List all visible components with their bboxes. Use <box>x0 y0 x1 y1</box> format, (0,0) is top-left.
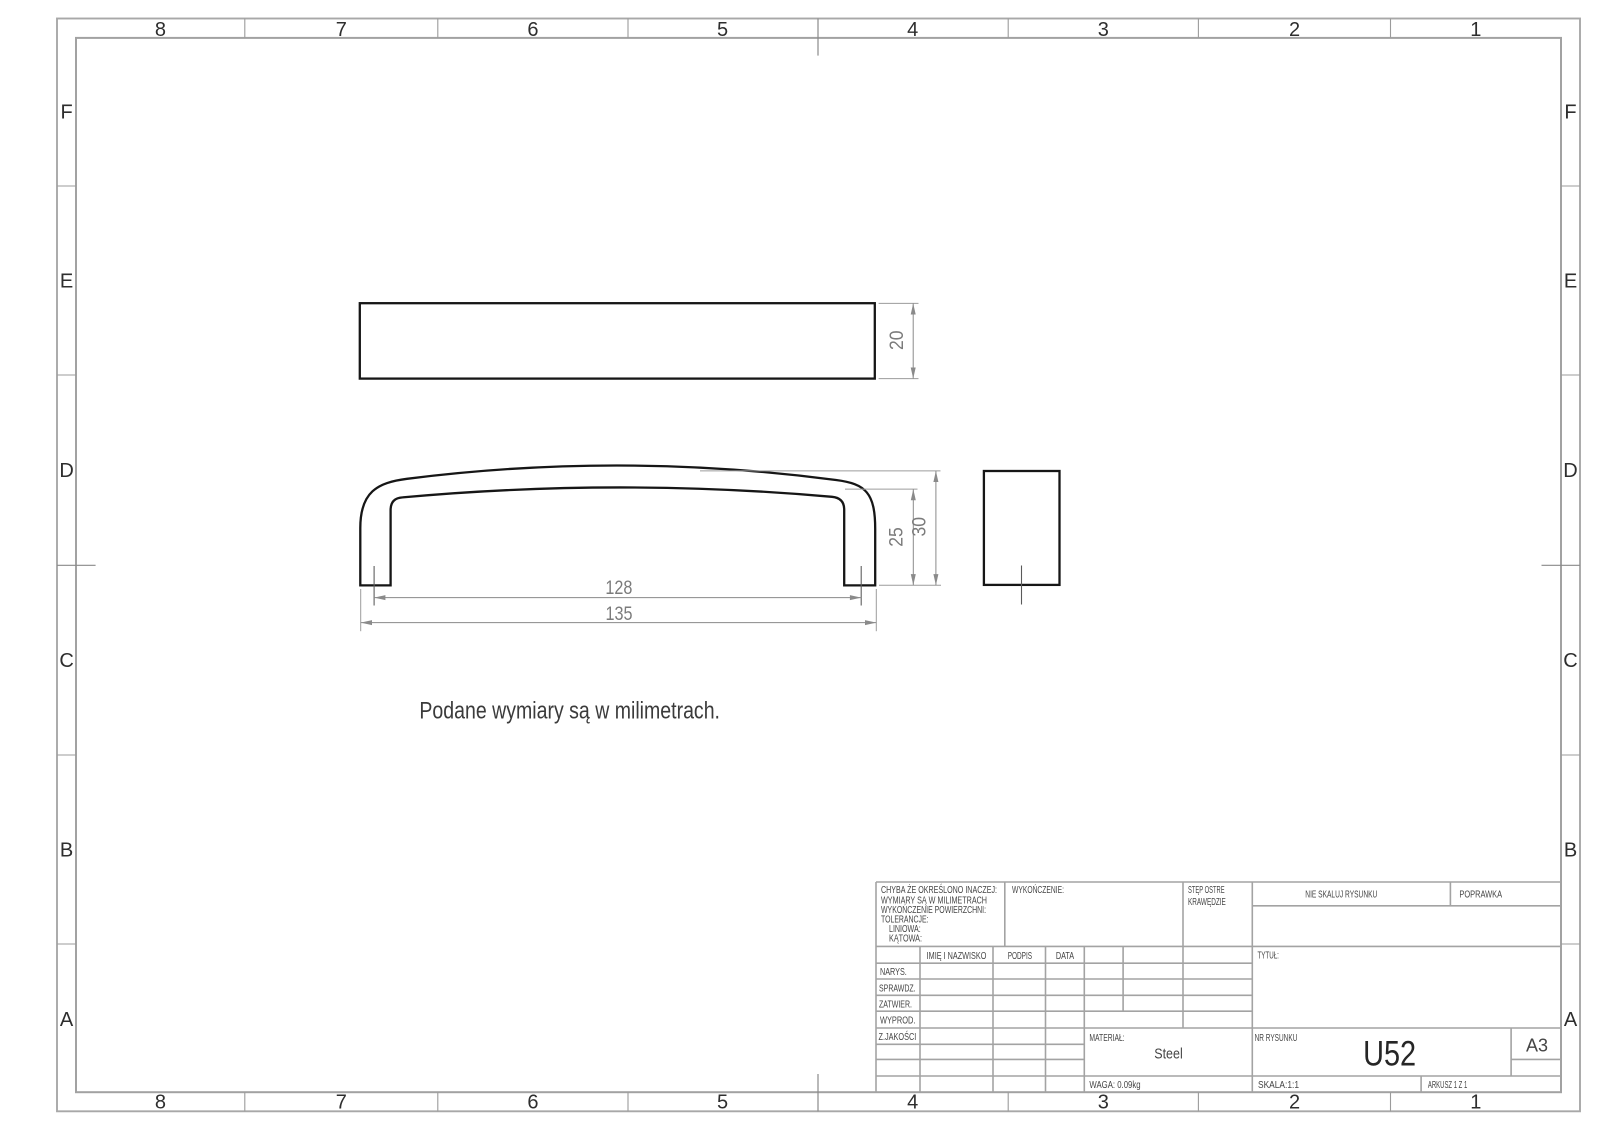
svg-text:6: 6 <box>527 19 538 41</box>
svg-text:POPRAWKA: POPRAWKA <box>1459 890 1502 901</box>
svg-text:F: F <box>1564 102 1576 124</box>
svg-text:C: C <box>59 650 73 672</box>
svg-text:IMIĘ I NAZWISKO: IMIĘ I NAZWISKO <box>927 951 987 962</box>
svg-text:2: 2 <box>1289 19 1300 41</box>
svg-text:D: D <box>59 460 73 482</box>
svg-text:1: 1 <box>1470 19 1481 41</box>
svg-text:KĄTOWA:: KĄTOWA: <box>889 934 922 945</box>
svg-text:128: 128 <box>605 578 632 599</box>
svg-text:A: A <box>60 1009 74 1031</box>
svg-text:CHYBA ŻE OKREŚLONO INACZEJ:: CHYBA ŻE OKREŚLONO INACZEJ: <box>881 883 997 896</box>
svg-text:WAGA: 0.09kg: WAGA: 0.09kg <box>1089 1080 1140 1091</box>
svg-text:Podane wymiary są w milimetrac: Podane wymiary są w milimetrach. <box>419 698 720 725</box>
svg-text:KRAWĘDZIE: KRAWĘDZIE <box>1188 897 1226 908</box>
svg-text:7: 7 <box>336 1092 347 1114</box>
svg-text:20: 20 <box>887 331 908 351</box>
svg-text:SPRAWDZ.: SPRAWDZ. <box>879 983 916 994</box>
svg-text:NIE SKALUJ RYSUNKU: NIE SKALUJ RYSUNKU <box>1305 890 1377 901</box>
svg-text:ARKUSZ 1 Z 1: ARKUSZ 1 Z 1 <box>1428 1080 1468 1091</box>
svg-text:5: 5 <box>717 19 728 41</box>
svg-text:2: 2 <box>1289 1092 1300 1114</box>
svg-text:30: 30 <box>910 517 931 537</box>
svg-text:7: 7 <box>336 19 347 41</box>
svg-text:25: 25 <box>887 527 908 547</box>
svg-text:U52: U52 <box>1363 1035 1416 1074</box>
svg-text:A: A <box>1564 1009 1578 1031</box>
svg-text:NR RYSUNKU: NR RYSUNKU <box>1255 1033 1298 1044</box>
svg-text:E: E <box>60 271 73 293</box>
svg-text:3: 3 <box>1098 19 1109 41</box>
svg-text:135: 135 <box>606 604 633 625</box>
svg-text:B: B <box>1564 840 1577 862</box>
svg-text:PODPIS: PODPIS <box>1008 951 1033 962</box>
svg-text:B: B <box>60 840 73 862</box>
svg-text:A3: A3 <box>1526 1036 1548 1056</box>
svg-text:NARYS.: NARYS. <box>880 967 907 978</box>
svg-text:6: 6 <box>527 1092 538 1114</box>
svg-text:WYKOŃCZENIE:: WYKOŃCZENIE: <box>1012 883 1064 896</box>
svg-text:8: 8 <box>155 1092 166 1114</box>
svg-text:C: C <box>1563 650 1577 672</box>
svg-text:E: E <box>1564 271 1577 293</box>
svg-text:Z.JAKOŚCI: Z.JAKOŚCI <box>879 1030 917 1043</box>
svg-text:D: D <box>1563 460 1577 482</box>
svg-text:ZATWIER.: ZATWIER. <box>879 999 912 1010</box>
svg-text:8: 8 <box>155 19 166 41</box>
svg-text:DATA: DATA <box>1056 951 1074 962</box>
svg-text:STĘP OSTRE: STĘP OSTRE <box>1188 885 1225 896</box>
svg-text:4: 4 <box>907 1092 918 1114</box>
svg-text:SKALA:1:1: SKALA:1:1 <box>1258 1080 1299 1091</box>
svg-text:Steel: Steel <box>1154 1046 1183 1063</box>
svg-text:1: 1 <box>1470 1092 1481 1114</box>
svg-text:MATERIAŁ:: MATERIAŁ: <box>1089 1033 1124 1044</box>
svg-text:5: 5 <box>717 1092 728 1114</box>
svg-text:F: F <box>60 102 72 124</box>
svg-text:TYTUŁ:: TYTUŁ: <box>1258 951 1279 962</box>
svg-text:WYPROD.: WYPROD. <box>880 1016 915 1027</box>
svg-text:3: 3 <box>1098 1092 1109 1114</box>
svg-text:4: 4 <box>907 19 918 41</box>
